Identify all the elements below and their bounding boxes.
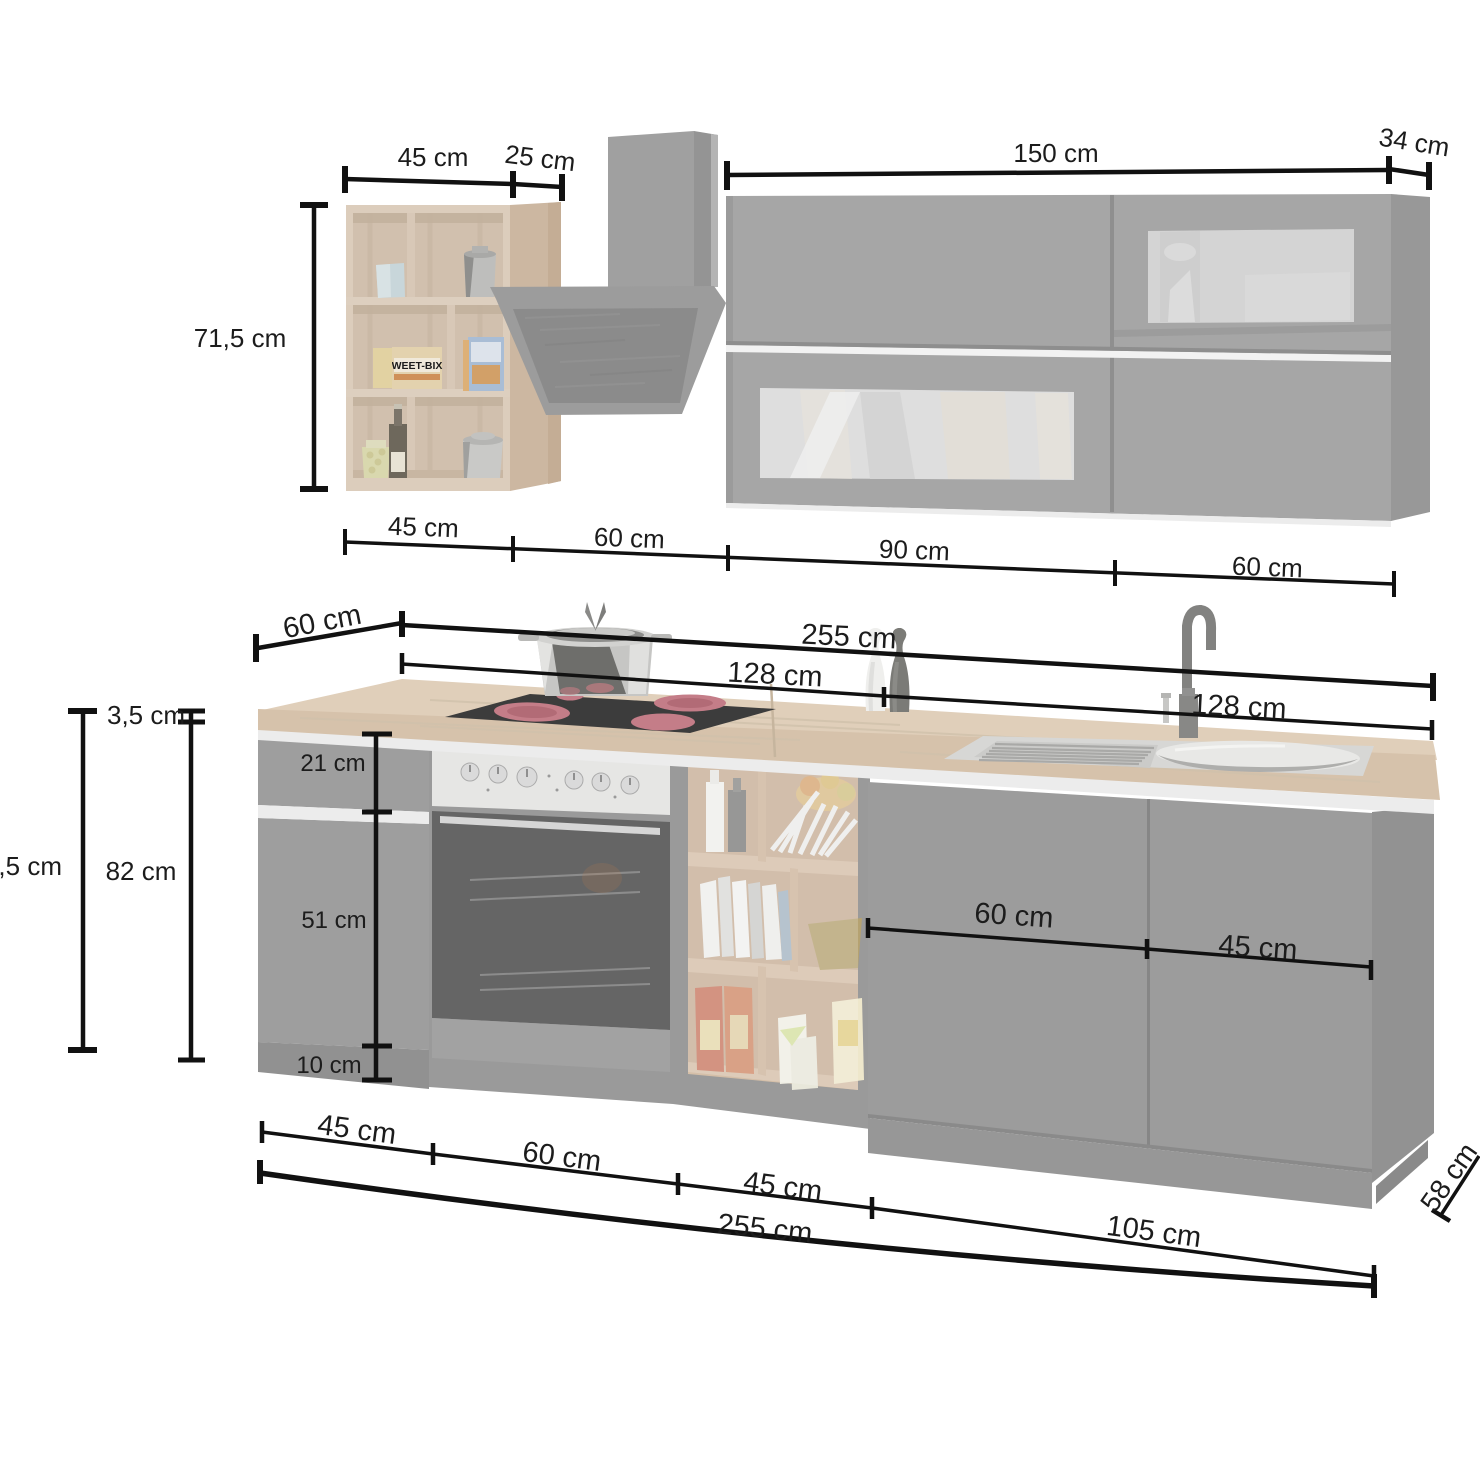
svg-text:90 cm: 90 cm xyxy=(878,534,950,567)
svg-text:10 cm: 10 cm xyxy=(296,1052,361,1079)
svg-text:51 cm: 51 cm xyxy=(301,907,366,934)
svg-text:WEET-BIX: WEET-BIX xyxy=(392,360,443,372)
svg-text:128 cm: 128 cm xyxy=(727,657,824,694)
svg-text:255 cm: 255 cm xyxy=(801,619,898,656)
svg-text:150 cm: 150 cm xyxy=(1013,138,1098,168)
svg-text:3,5 cm: 3,5 cm xyxy=(107,700,185,730)
svg-text:128 cm: 128 cm xyxy=(1191,689,1288,726)
svg-text:60 cm: 60 cm xyxy=(973,897,1054,934)
svg-text:82 cm: 82 cm xyxy=(106,856,177,886)
svg-text:45 cm: 45 cm xyxy=(1217,929,1298,966)
svg-text:60 cm: 60 cm xyxy=(1231,551,1303,584)
svg-text:60 cm: 60 cm xyxy=(593,522,665,555)
svg-text:21 cm: 21 cm xyxy=(300,750,365,777)
svg-text:45 cm: 45 cm xyxy=(398,142,469,172)
svg-text:85,5 cm: 85,5 cm xyxy=(0,851,62,881)
svg-text:45 cm: 45 cm xyxy=(387,511,459,544)
svg-text:71,5 cm: 71,5 cm xyxy=(194,323,287,353)
